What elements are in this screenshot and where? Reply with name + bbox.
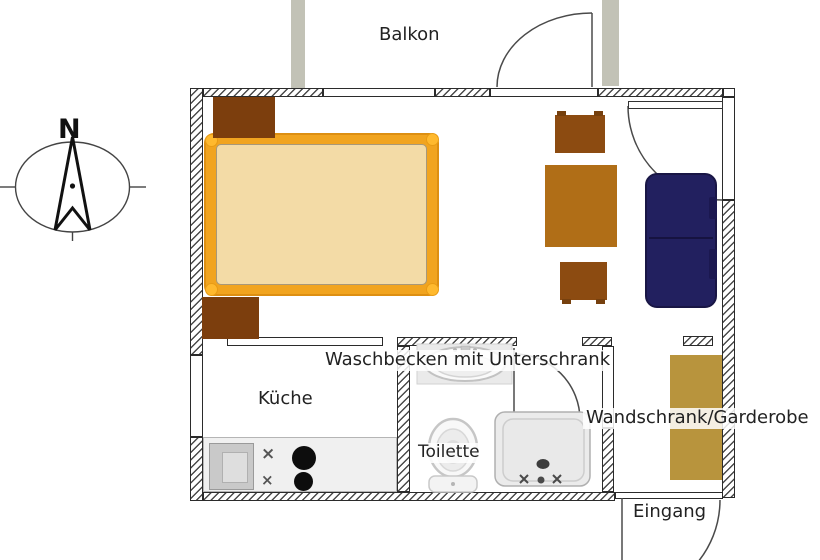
chair-backrest-post [596, 299, 605, 304]
drain-icon [537, 459, 550, 469]
chair-backrest-post [594, 111, 603, 116]
shower [495, 412, 590, 486]
sofa-cushion-seam [649, 237, 713, 239]
compass-north-label: N [55, 114, 84, 145]
sofa [645, 173, 717, 308]
toilet-label: Toilette [415, 443, 483, 463]
kitchen-sink [209, 443, 254, 490]
balcony-door-swing-arc [497, 13, 592, 87]
washbasin-label: Waschbecken mit Unterschrank [322, 350, 613, 371]
double-bed [204, 133, 439, 296]
stove-burner-large [292, 446, 316, 470]
sink-basin [222, 452, 248, 483]
entrance-label: Eingang [630, 502, 709, 523]
stove-burner-small [294, 472, 313, 491]
burner-jet-icon: × [261, 471, 274, 489]
wardrobe-label: Wandschrank/Garderobe [583, 408, 812, 429]
floor-plan-canvas: Balkon [0, 0, 820, 560]
sofa-cushion-tab [709, 249, 717, 279]
nightstand-south [202, 297, 259, 339]
balcony-door [497, 13, 592, 87]
room-door-leaf [628, 101, 723, 109]
dining-table [545, 165, 617, 247]
burner-jet-icon: × [261, 444, 275, 464]
chair-north [555, 115, 605, 153]
bed-post-knob [205, 283, 218, 296]
sofa-cushion-tab [709, 197, 717, 219]
chair-backrest-post [562, 299, 571, 304]
bed-post-knob [426, 133, 439, 146]
chair-backrest-post [557, 111, 566, 116]
nightstand-north [213, 97, 275, 138]
mattress [216, 144, 427, 285]
bed-post-knob [426, 283, 439, 296]
chair-south [560, 262, 607, 300]
compass-rose [0, 137, 146, 241]
kitchen-label: Küche [255, 389, 316, 410]
